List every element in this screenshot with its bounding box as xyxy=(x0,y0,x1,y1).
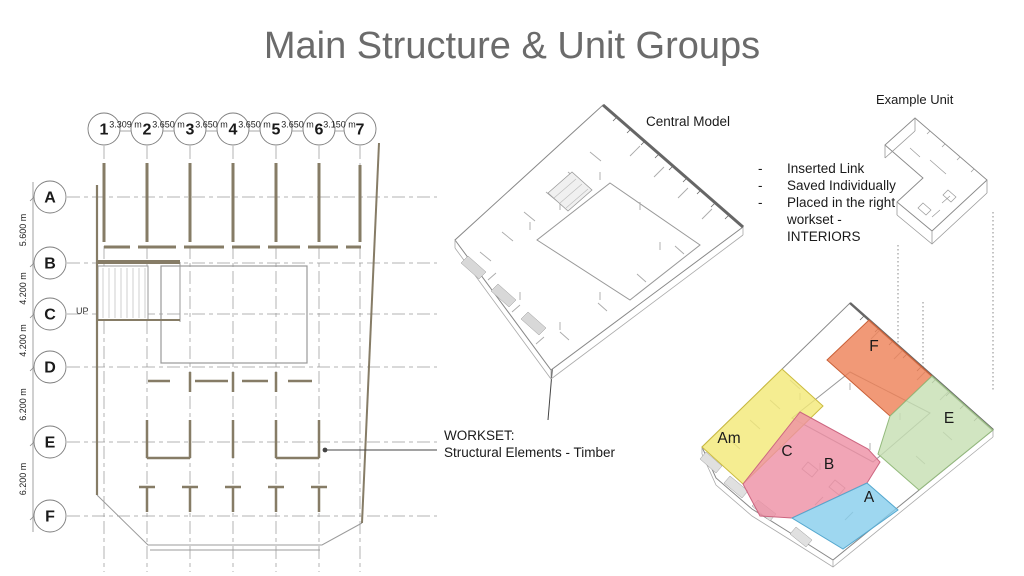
column-bubble-5: 5 xyxy=(272,122,281,139)
central-model-drawing xyxy=(455,105,743,379)
unit-label-b: B xyxy=(824,456,834,473)
column-dim-5-6: 3.650 m xyxy=(281,120,314,130)
column-dim-1-2: 3.309 m xyxy=(109,120,142,130)
courtyard xyxy=(161,266,307,363)
slide-drawing: 1 2 3 4 5 6 7 A B C D E F 3.309 m 3.650 … xyxy=(0,0,1024,576)
row-dim-b-c: 4.200 m xyxy=(18,272,28,305)
page-title: Main Structure & Unit Groups xyxy=(0,27,1024,67)
row-bubble-a: A xyxy=(44,190,56,207)
column-dim-4-5: 3.650 m xyxy=(238,120,271,130)
row-dim-e-f: 6.200 m xyxy=(18,463,28,496)
row-dim-c-d: 4.200 m xyxy=(18,324,28,357)
note-text: Saved Individually xyxy=(787,177,907,194)
unit-label-c: C xyxy=(781,443,792,460)
row-dim-a-b: 5.600 m xyxy=(18,214,28,247)
list-item: - Saved Individually xyxy=(758,177,907,194)
unit-groups-plan: F E Am C B A xyxy=(700,303,993,567)
grid-bubbles xyxy=(34,113,376,532)
column-dim-6-7: 3.150 m xyxy=(323,120,356,130)
workset-note-name: Structural Elements - Timber xyxy=(444,444,615,461)
list-item: - Inserted Link xyxy=(758,160,907,177)
column-bubble-2: 2 xyxy=(143,122,152,139)
row-bubble-f: F xyxy=(45,509,55,526)
timber-walls xyxy=(97,143,379,523)
column-dim-2-3: 3.650 m xyxy=(152,120,185,130)
bullet-dash: - xyxy=(758,194,787,245)
stair xyxy=(98,262,180,322)
row-dim-d-e: 6.200 m xyxy=(18,388,28,421)
example-unit-label: Example Unit xyxy=(876,92,953,107)
unit-label-am: Am xyxy=(717,430,740,447)
workset-note-title: WORKSET: xyxy=(444,427,615,444)
note-text: Placed in the right workset - INTERIORS xyxy=(787,194,907,245)
unit-label-a: A xyxy=(864,489,875,506)
dimension-labels: 3.309 m 3.650 m 3.650 m 3.650 m 3.650 m … xyxy=(18,120,356,496)
floor-plan: 1 2 3 4 5 6 7 A B C D E F 3.309 m 3.650 … xyxy=(18,113,437,572)
stair-up-label: UP xyxy=(76,306,89,316)
note-text: Inserted Link xyxy=(787,160,907,177)
central-model-label: Central Model xyxy=(646,114,730,129)
unit-label-e: E xyxy=(944,410,954,427)
workset-note: WORKSET: Structural Elements - Timber xyxy=(444,427,615,461)
column-bubble-1: 1 xyxy=(100,122,109,139)
column-bubble-3: 3 xyxy=(186,122,195,139)
grid-lines xyxy=(67,146,437,572)
list-item: - Placed in the right workset - INTERIOR… xyxy=(758,194,907,245)
grid-bubble-labels: 1 2 3 4 5 6 7 A B C D E F xyxy=(44,122,364,526)
plan-outline xyxy=(97,495,362,550)
column-bubble-7: 7 xyxy=(356,122,365,139)
bullet-dash: - xyxy=(758,160,787,177)
column-bubble-6: 6 xyxy=(315,122,324,139)
bullet-dash: - xyxy=(758,177,787,194)
link-notes: - Inserted Link - Saved Individually - P… xyxy=(758,160,907,245)
column-bubble-4: 4 xyxy=(229,122,238,139)
row-bubble-e: E xyxy=(45,435,56,452)
row-bubble-c: C xyxy=(44,307,56,324)
unit-label-f: F xyxy=(869,338,878,355)
column-dim-3-4: 3.650 m xyxy=(195,120,228,130)
row-bubble-d: D xyxy=(44,360,56,377)
row-bubble-b: B xyxy=(44,256,56,273)
